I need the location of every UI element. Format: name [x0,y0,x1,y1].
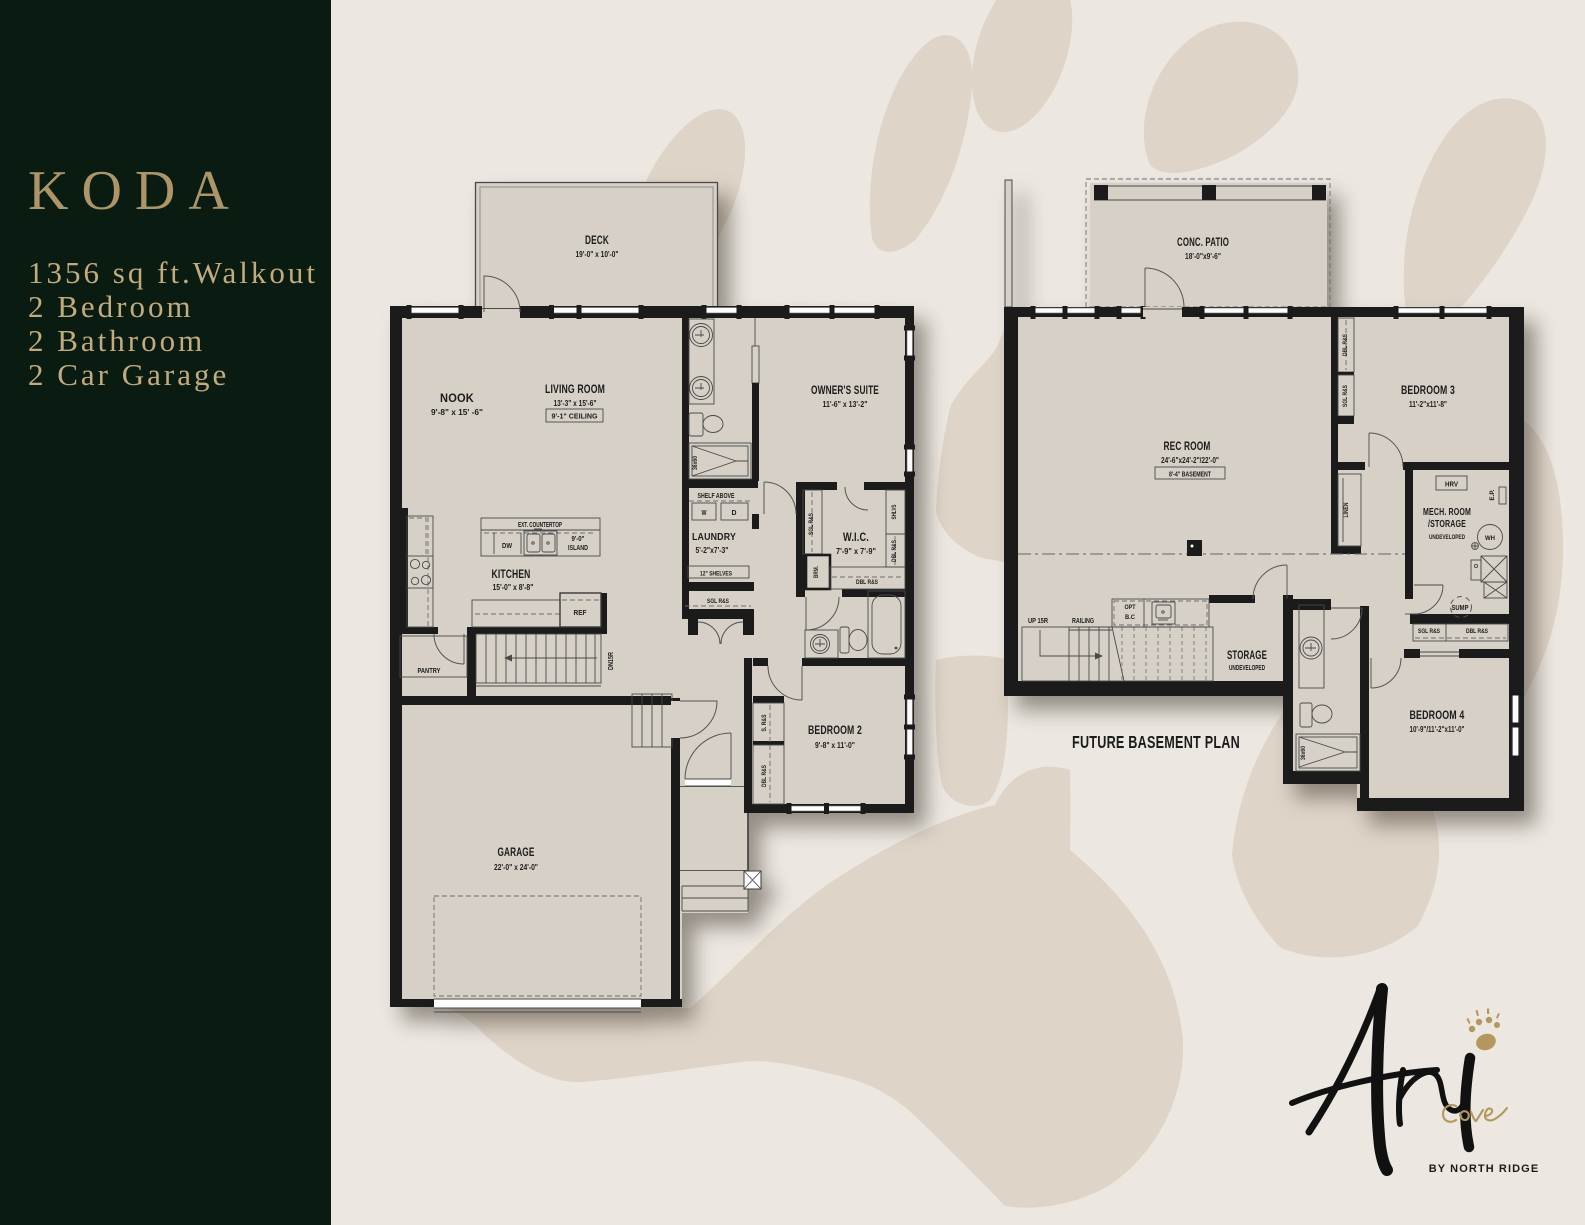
svg-text:15'-0" x 8'-8": 15'-0" x 8'-8" [493,582,534,592]
svg-text:SHLVS: SHLVS [891,505,898,520]
svg-text:11'-6" x 13'-2": 11'-6" x 13'-2" [823,399,868,409]
svg-text:/STORAGE: /STORAGE [1428,519,1466,530]
svg-text:DBL R&S: DBL R&S [761,765,768,787]
svg-text:9'-0": 9'-0" [572,536,585,543]
svg-text:DW: DW [502,543,512,550]
svg-text:NOOK: NOOK [440,393,474,405]
svg-text:BY NORTH RIDGE: BY NORTH RIDGE [1429,1163,1540,1175]
svg-text:WH: WH [1485,535,1495,542]
svg-text:UNDEVELOPED: UNDEVELOPED [1429,534,1465,541]
svg-text:LAUNDRY: LAUNDRY [692,531,736,543]
svg-text:FUTURE BASEMENT PLAN: FUTURE BASEMENT PLAN [1072,732,1240,752]
svg-text:11'-2"x11'-8": 11'-2"x11'-8" [1409,399,1447,409]
svg-text:BEDROOM 4: BEDROOM 4 [1410,710,1465,722]
svg-text:9'-8" x 15' -6": 9'-8" x 15' -6" [431,407,483,417]
svg-text:19'-0" x 10'-0": 19'-0" x 10'-0" [576,249,619,259]
svg-text:KITCHEN: KITCHEN [492,569,531,581]
svg-text:B.C: B.C [1125,614,1135,621]
svg-text:7'-9" x 7'-9": 7'-9" x 7'-9" [836,546,876,556]
svg-text:BEDROOM 2: BEDROOM 2 [808,725,862,737]
svg-text:36x60: 36x60 [692,456,699,470]
svg-text:ISLAND: ISLAND [568,545,588,552]
svg-text:SGL R&S: SGL R&S [808,513,815,535]
svg-text:24'-6"x24'-2"/22'-0": 24'-6"x24'-2"/22'-0" [1161,455,1219,465]
svg-text:LINEN: LINEN [1343,502,1350,517]
svg-text:MECH. ROOM: MECH. ROOM [1423,507,1471,518]
svg-text:9'-8" x 11'-0": 9'-8" x 11'-0" [815,740,855,750]
svg-text:10'-9"/11'-2"x11'-0": 10'-9"/11'-2"x11'-0" [1410,724,1465,734]
svg-text:REC ROOM: REC ROOM [1164,441,1211,453]
svg-text:REF: REF [574,610,588,617]
svg-text:DBL R&S: DBL R&S [1342,334,1349,356]
svg-text:DBL R&S: DBL R&S [856,579,878,586]
svg-text:STORAGE: STORAGE [1227,650,1267,662]
svg-text:SGL R&S: SGL R&S [1342,385,1349,407]
svg-text:DN15R: DN15R [608,652,615,670]
svg-text:E.P.: E.P. [1489,489,1496,500]
svg-text:DBL R&S: DBL R&S [891,540,898,562]
svg-text:EXT. COUNTERTOP: EXT. COUNTERTOP [518,522,562,529]
svg-text:13'-3" x 15'-6": 13'-3" x 15'-6" [554,398,597,408]
svg-text:GARAGE: GARAGE [498,847,535,859]
svg-text:DECK: DECK [585,235,609,247]
svg-text:OWNER'S SUITE: OWNER'S SUITE [811,385,879,397]
svg-text:SUMP: SUMP [1452,605,1469,612]
svg-text:UP 15R: UP 15R [1028,618,1048,625]
svg-text:2 Bedroom: 2 Bedroom [28,289,194,324]
svg-text:SGL R&S: SGL R&S [1418,628,1440,635]
svg-text:OPT: OPT [1125,604,1136,611]
svg-text:BRM.: BRM. [813,566,820,578]
svg-text:KODA: KODA [28,160,242,222]
svg-text:22'-0" x 24'-0": 22'-0" x 24'-0" [494,862,538,872]
svg-text:5'-2"x7'-3": 5'-2"x7'-3" [696,545,729,555]
svg-text:UNDEVELOPED: UNDEVELOPED [1229,665,1265,672]
svg-text:W.I.C.: W.I.C. [843,532,869,544]
svg-text:D: D [732,510,737,517]
svg-text:36x60: 36x60 [1300,746,1307,760]
svg-text:2 Bathroom: 2 Bathroom [28,323,205,358]
svg-text:LIVING ROOM: LIVING ROOM [545,384,605,396]
svg-text:9'-1" CEILING: 9'-1" CEILING [552,414,599,421]
svg-text:W: W [702,510,707,517]
svg-text:BEDROOM 3: BEDROOM 3 [1401,385,1455,397]
svg-text:S. R&S: S. R&S [761,715,768,732]
svg-text:18'-0"x9'-6": 18'-0"x9'-6" [1185,251,1221,261]
svg-text:DBL R&S: DBL R&S [1466,628,1488,635]
svg-text:HRV: HRV [1445,481,1458,488]
svg-text:12" SHELVES: 12" SHELVES [700,571,732,578]
svg-text:2 Car Garage: 2 Car Garage [28,357,229,392]
svg-text:8'-4" BASEMENT: 8'-4" BASEMENT [1169,471,1212,478]
svg-text:CONC. PATIO: CONC. PATIO [1177,237,1229,249]
svg-text:1356 sq ft.Walkout: 1356 sq ft.Walkout [28,255,318,290]
svg-text:SHELF ABOVE: SHELF ABOVE [698,493,735,500]
svg-text:PANTRY: PANTRY [418,668,441,675]
svg-text:SGL R&S: SGL R&S [707,598,729,605]
svg-text:RAILING: RAILING [1072,618,1094,625]
